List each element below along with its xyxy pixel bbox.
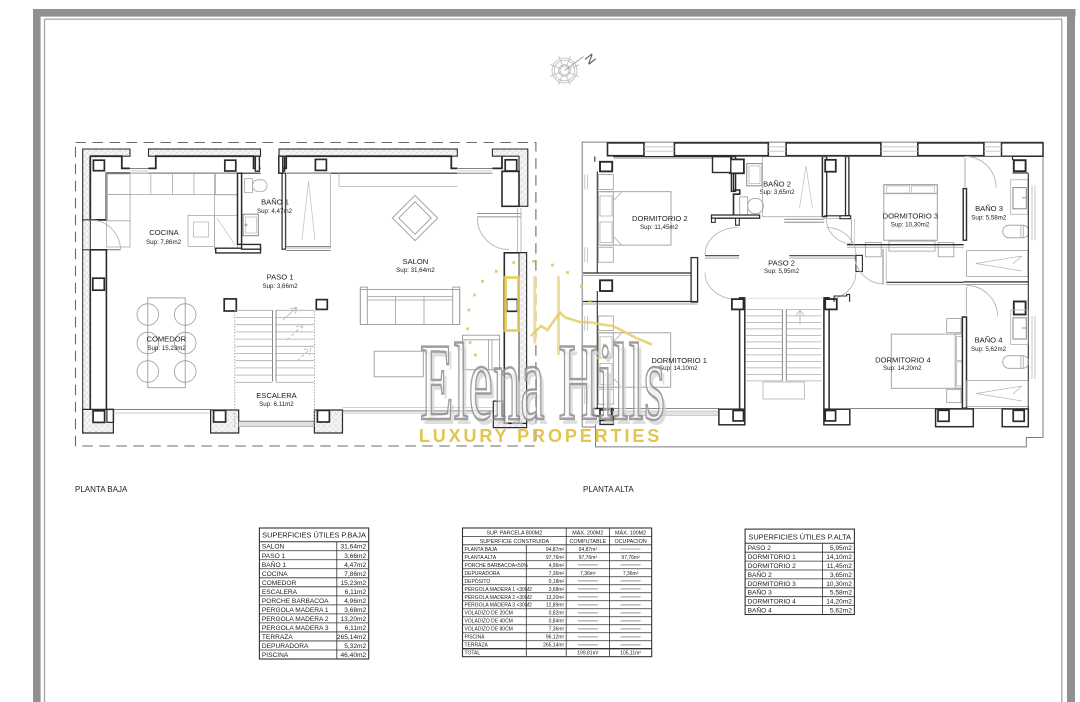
svg-text:TOTAL: TOTAL — [465, 651, 481, 657]
svg-text:ESCALERA: ESCALERA — [256, 391, 297, 400]
svg-text:DORMITORIO 2: DORMITORIO 2 — [748, 563, 797, 570]
svg-text:97,76m²: 97,76m² — [579, 555, 598, 561]
svg-text:MÁX. 100M2: MÁX. 100M2 — [615, 529, 646, 536]
svg-text:7,86m2: 7,86m2 — [344, 571, 366, 578]
svg-text:SUPERFICIE CONSTRUIDA: SUPERFICIE CONSTRUIDA — [480, 539, 550, 545]
svg-text:3,65m2: 3,65m2 — [830, 572, 852, 579]
svg-text:4,96m2: 4,96m2 — [344, 598, 366, 605]
svg-text:Sup: 10,30m2: Sup: 10,30m2 — [891, 221, 930, 228]
svg-text:3,68m²: 3,68m² — [549, 587, 565, 593]
svg-text:4,96m²: 4,96m² — [549, 563, 565, 569]
svg-text:Sup: 5,62m2: Sup: 5,62m2 — [971, 346, 1007, 353]
svg-text:Sup: 6,11m2: Sup: 6,11m2 — [259, 401, 294, 408]
svg-text:LUXURY PROPERTIES: LUXURY PROPERTIES — [419, 426, 662, 446]
svg-text:Sup: 5,58m2: Sup: 5,58m2 — [971, 215, 1007, 222]
svg-text:14,20m2: 14,20m2 — [826, 599, 852, 606]
svg-text:Sup: 14,20m2: Sup: 14,20m2 — [883, 365, 922, 372]
svg-text:11,45m2: 11,45m2 — [827, 563, 853, 570]
svg-text:96,12m²: 96,12m² — [546, 635, 565, 641]
svg-text:ESCALERA: ESCALERA — [262, 589, 298, 596]
svg-text:BAÑO 1: BAÑO 1 — [261, 198, 289, 207]
svg-text:15,23m2: 15,23m2 — [341, 580, 367, 587]
svg-text:PLANTA BAJA: PLANTA BAJA — [465, 547, 498, 553]
svg-text:Sup: 7,86m2: Sup: 7,86m2 — [146, 239, 182, 246]
svg-text:Sup: 3,66m2: Sup: 3,66m2 — [262, 283, 298, 290]
svg-text:4,47m2: 4,47m2 — [344, 562, 366, 569]
svg-text:VOLADIZO DE 20CM: VOLADIZO DE 20CM — [465, 611, 513, 617]
svg-text:Sup: 5,95m2: Sup: 5,95m2 — [764, 268, 800, 275]
svg-text:PÉRGOLA MADERA 2 <30M2: PÉRGOLA MADERA 2 <30M2 — [465, 594, 533, 601]
svg-text:Sup: 15,23m2: Sup: 15,23m2 — [147, 345, 186, 352]
svg-text:DORMITORIO 3: DORMITORIO 3 — [748, 581, 797, 588]
svg-text:COCINA: COCINA — [149, 228, 179, 237]
svg-text:94,87m²: 94,87m² — [579, 547, 598, 553]
svg-text:COCINA: COCINA — [262, 571, 288, 578]
svg-text:PASO 2: PASO 2 — [768, 258, 795, 267]
svg-text:6,11m2: 6,11m2 — [345, 589, 367, 596]
svg-text:VOLADIZO DE 40CM: VOLADIZO DE 40CM — [465, 619, 513, 625]
svg-text:0,82m²: 0,82m² — [549, 611, 565, 617]
svg-text:10,30m2: 10,30m2 — [826, 581, 852, 588]
svg-text:5,95m2: 5,95m2 — [830, 545, 852, 552]
svg-text:265,14m²: 265,14m² — [543, 643, 564, 649]
svg-text:5,32m2: 5,32m2 — [344, 643, 366, 650]
svg-text:DORMITORIO 4: DORMITORIO 4 — [875, 356, 931, 365]
svg-text:DEPÓSITO: DEPÓSITO — [465, 578, 491, 585]
svg-text:TERRAZA: TERRAZA — [465, 643, 489, 649]
svg-text:TERRAZA: TERRAZA — [262, 634, 293, 641]
svg-text:31,64m2: 31,64m2 — [341, 544, 367, 551]
svg-text:PASO 1: PASO 1 — [267, 273, 294, 282]
svg-text:SALON: SALON — [403, 257, 429, 266]
svg-text:7,36m²: 7,36m² — [549, 627, 565, 633]
svg-text:SUPERFICIES ÚTILES P.ALTA: SUPERFICIES ÚTILES P.ALTA — [748, 533, 851, 542]
svg-text:DORMITORIO 3: DORMITORIO 3 — [883, 212, 939, 221]
svg-text:5,58m2: 5,58m2 — [830, 590, 852, 597]
svg-text:PASO 1: PASO 1 — [262, 553, 286, 560]
svg-text:199,81m²: 199,81m² — [577, 651, 598, 657]
svg-text:OCUPACION: OCUPACION — [614, 539, 646, 545]
svg-text:DORMITORIO 1: DORMITORIO 1 — [748, 554, 797, 561]
svg-text:Sup: 4,47m2: Sup: 4,47m2 — [257, 208, 293, 215]
svg-text:BAÑO 3: BAÑO 3 — [748, 588, 773, 597]
svg-text:3,66m2: 3,66m2 — [344, 553, 366, 560]
svg-text:BAÑO 2: BAÑO 2 — [748, 570, 773, 579]
svg-text:13,20m²: 13,20m² — [546, 595, 565, 601]
svg-text:PORCHE BARBACOA<50%: PORCHE BARBACOA<50% — [465, 563, 529, 569]
svg-text:265,14m2: 265,14m2 — [337, 634, 367, 641]
svg-text:PORCHE BARBACOA: PORCHE BARBACOA — [262, 598, 329, 605]
svg-text:SUP. PARCELA 800M2: SUP. PARCELA 800M2 — [486, 530, 542, 536]
svg-text:46,40m2: 46,40m2 — [341, 652, 367, 659]
svg-text:Sup: 3,65m2: Sup: 3,65m2 — [759, 189, 795, 196]
svg-text:BAÑO 2: BAÑO 2 — [763, 180, 791, 189]
svg-text:PLANTA ALTA: PLANTA ALTA — [465, 555, 497, 561]
svg-text:PERGOLA MADERA 2: PERGOLA MADERA 2 — [262, 616, 329, 623]
svg-text:7,36m²: 7,36m² — [549, 571, 565, 577]
svg-text:7,36m²: 7,36m² — [623, 571, 639, 577]
svg-text:PISCINA: PISCINA — [465, 635, 486, 641]
svg-text:PASO 2: PASO 2 — [748, 545, 772, 552]
svg-text:6,11m2: 6,11m2 — [345, 625, 367, 632]
svg-text:BAÑO 1: BAÑO 1 — [262, 560, 287, 569]
svg-text:DEPURADORA: DEPURADORA — [262, 643, 309, 650]
svg-text:14,10m2: 14,10m2 — [826, 554, 852, 561]
svg-text:DEPURADORA: DEPURADORA — [465, 571, 501, 577]
svg-text:105,11m²: 105,11m² — [620, 651, 641, 657]
svg-text:COMEDOR: COMEDOR — [146, 334, 186, 343]
svg-text:12,89m²: 12,89m² — [546, 603, 565, 609]
svg-text:SALON: SALON — [262, 544, 285, 551]
svg-text:5,62m2: 5,62m2 — [830, 608, 852, 615]
svg-text:PERGOLA MADERA 1: PERGOLA MADERA 1 — [262, 607, 329, 614]
svg-text:VOLADIZO DE 80CM: VOLADIZO DE 80CM — [465, 627, 513, 633]
svg-text:PÉRGOLA MADERA 3 <30M2: PÉRGOLA MADERA 3 <30M2 — [465, 602, 533, 609]
svg-text:SUPERFICIES ÚTILES P.BAJA: SUPERFICIES ÚTILES P.BAJA — [262, 531, 366, 540]
svg-text:PLANTA BAJA: PLANTA BAJA — [75, 485, 128, 494]
svg-text:BAÑO 3: BAÑO 3 — [975, 204, 1003, 213]
svg-text:PÉRGOLA MADERA 1 <30M2: PÉRGOLA MADERA 1 <30M2 — [465, 586, 533, 593]
svg-text:PERGOLA MADERA 3: PERGOLA MADERA 3 — [262, 625, 329, 632]
svg-text:97,76m²: 97,76m² — [546, 555, 565, 561]
svg-text:PLANTA ALTA: PLANTA ALTA — [583, 485, 634, 494]
svg-text:BAÑO 4: BAÑO 4 — [748, 606, 773, 615]
svg-text:Elena Hills: Elena Hills — [420, 320, 665, 443]
svg-text:Sup: 11,45m2: Sup: 11,45m2 — [640, 224, 679, 231]
svg-text:Sup: 31,64m2: Sup: 31,64m2 — [396, 267, 435, 274]
svg-text:3,68m2: 3,68m2 — [344, 607, 366, 614]
svg-text:0,84m²: 0,84m² — [549, 619, 565, 625]
svg-text:7,36m²: 7,36m² — [580, 571, 596, 577]
svg-text:97,76m²: 97,76m² — [621, 555, 640, 561]
svg-text:COMEDOR: COMEDOR — [262, 580, 297, 587]
svg-text:PISCINA: PISCINA — [262, 652, 289, 659]
svg-text:0,18m²: 0,18m² — [549, 579, 565, 585]
svg-text:13,20m2: 13,20m2 — [341, 616, 367, 623]
svg-text:MÁX. 200M2: MÁX. 200M2 — [572, 529, 603, 536]
svg-text:BAÑO 4: BAÑO 4 — [975, 336, 1003, 345]
svg-text:DORMITORIO 4: DORMITORIO 4 — [748, 599, 797, 606]
svg-text:DORMITORIO 2: DORMITORIO 2 — [632, 214, 688, 223]
svg-text:94,87m²: 94,87m² — [546, 547, 565, 553]
svg-text:COMPUTABLE: COMPUTABLE — [569, 539, 606, 545]
